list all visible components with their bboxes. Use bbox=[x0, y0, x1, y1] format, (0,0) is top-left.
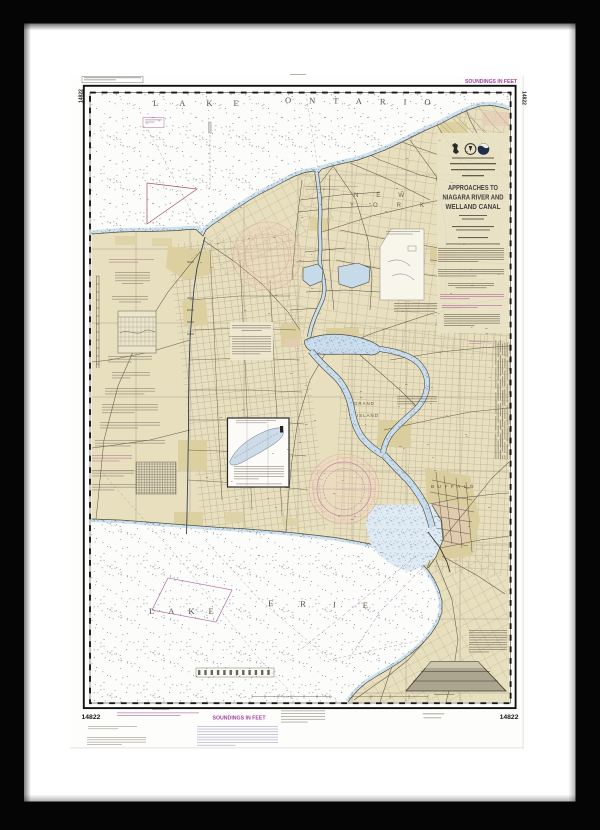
svg-text:YORK: YORK bbox=[350, 203, 443, 209]
svg-text:14822: 14822 bbox=[79, 89, 85, 103]
svg-text:SOUNDINGS IN FEET: SOUNDINGS IN FEET bbox=[465, 79, 517, 85]
svg-text:LAKE: LAKE bbox=[149, 606, 228, 616]
svg-text:ISLAND: ISLAND bbox=[357, 413, 379, 418]
svg-text:14822: 14822 bbox=[500, 714, 519, 721]
svg-text:APPROACHES TO: APPROACHES TO bbox=[448, 183, 498, 192]
svg-text:NIAGARA RIVER AND: NIAGARA RIVER AND bbox=[443, 193, 505, 202]
svg-text:14822: 14822 bbox=[82, 714, 101, 721]
svg-text:NEW: NEW bbox=[354, 193, 422, 199]
svg-text:SOUNDINGS IN FEET: SOUNDINGS IN FEET bbox=[213, 716, 266, 722]
svg-text:WELLAND CANAL: WELLAND CANAL bbox=[446, 202, 501, 211]
svg-text:14822: 14822 bbox=[521, 91, 527, 105]
svg-text:GRAND: GRAND bbox=[354, 401, 375, 406]
svg-text:LAKE: LAKE bbox=[153, 98, 260, 108]
